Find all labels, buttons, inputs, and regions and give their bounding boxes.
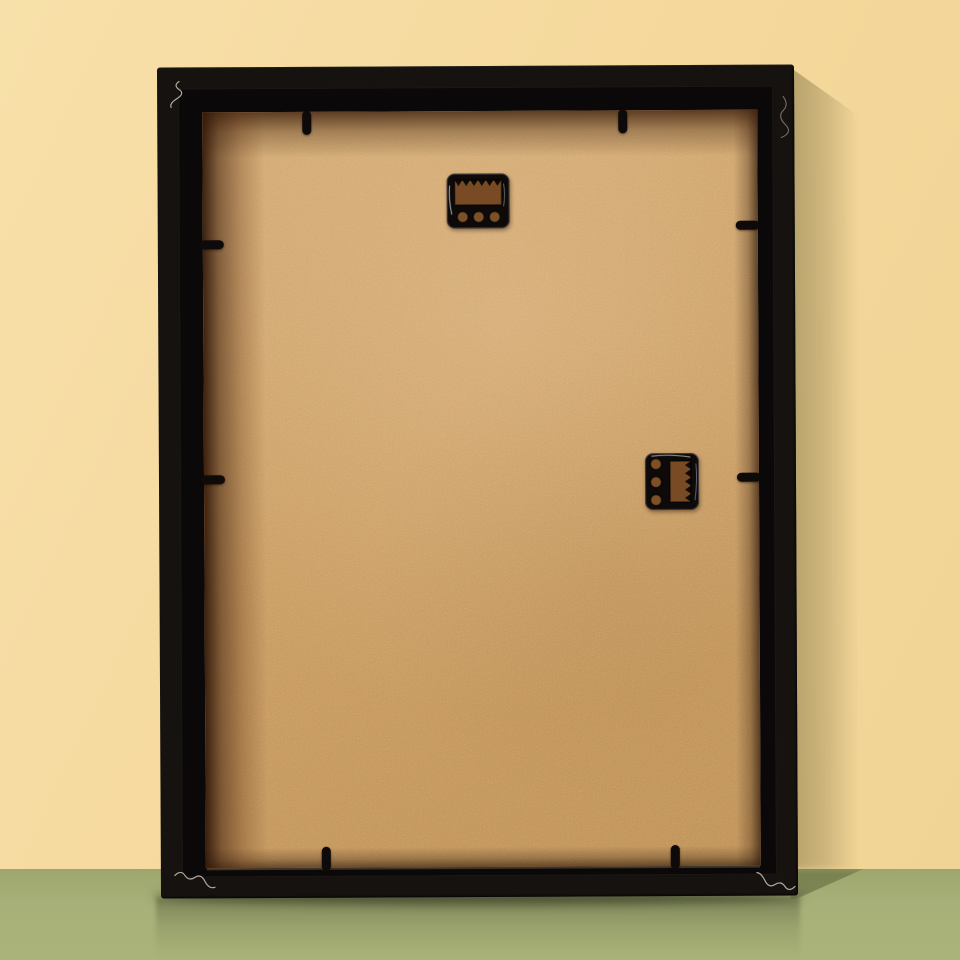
sawtooth-hanger-right xyxy=(644,452,700,511)
frame-floor-reflection xyxy=(156,897,800,959)
flexi-tab-bottom-left xyxy=(322,847,331,871)
corner-scratch-top-left xyxy=(165,79,199,113)
flexi-tab-right-lower xyxy=(737,473,761,482)
sawtooth-hanger-top xyxy=(445,172,510,230)
flexi-tab-bottom-right xyxy=(671,845,680,869)
corner-scratch-bottom-left xyxy=(173,867,217,893)
flexi-tab-top-left xyxy=(302,111,311,135)
flexi-tab-left-lower xyxy=(201,475,225,484)
flexi-tab-top-right xyxy=(618,109,627,133)
scene xyxy=(0,0,960,960)
flexi-tab-left-upper xyxy=(200,240,224,249)
picture-frame-back xyxy=(157,64,798,898)
flexi-tab-right-upper xyxy=(736,221,760,230)
corner-scratch-bottom-right xyxy=(753,866,797,892)
corner-scratch-top-right xyxy=(773,94,793,140)
